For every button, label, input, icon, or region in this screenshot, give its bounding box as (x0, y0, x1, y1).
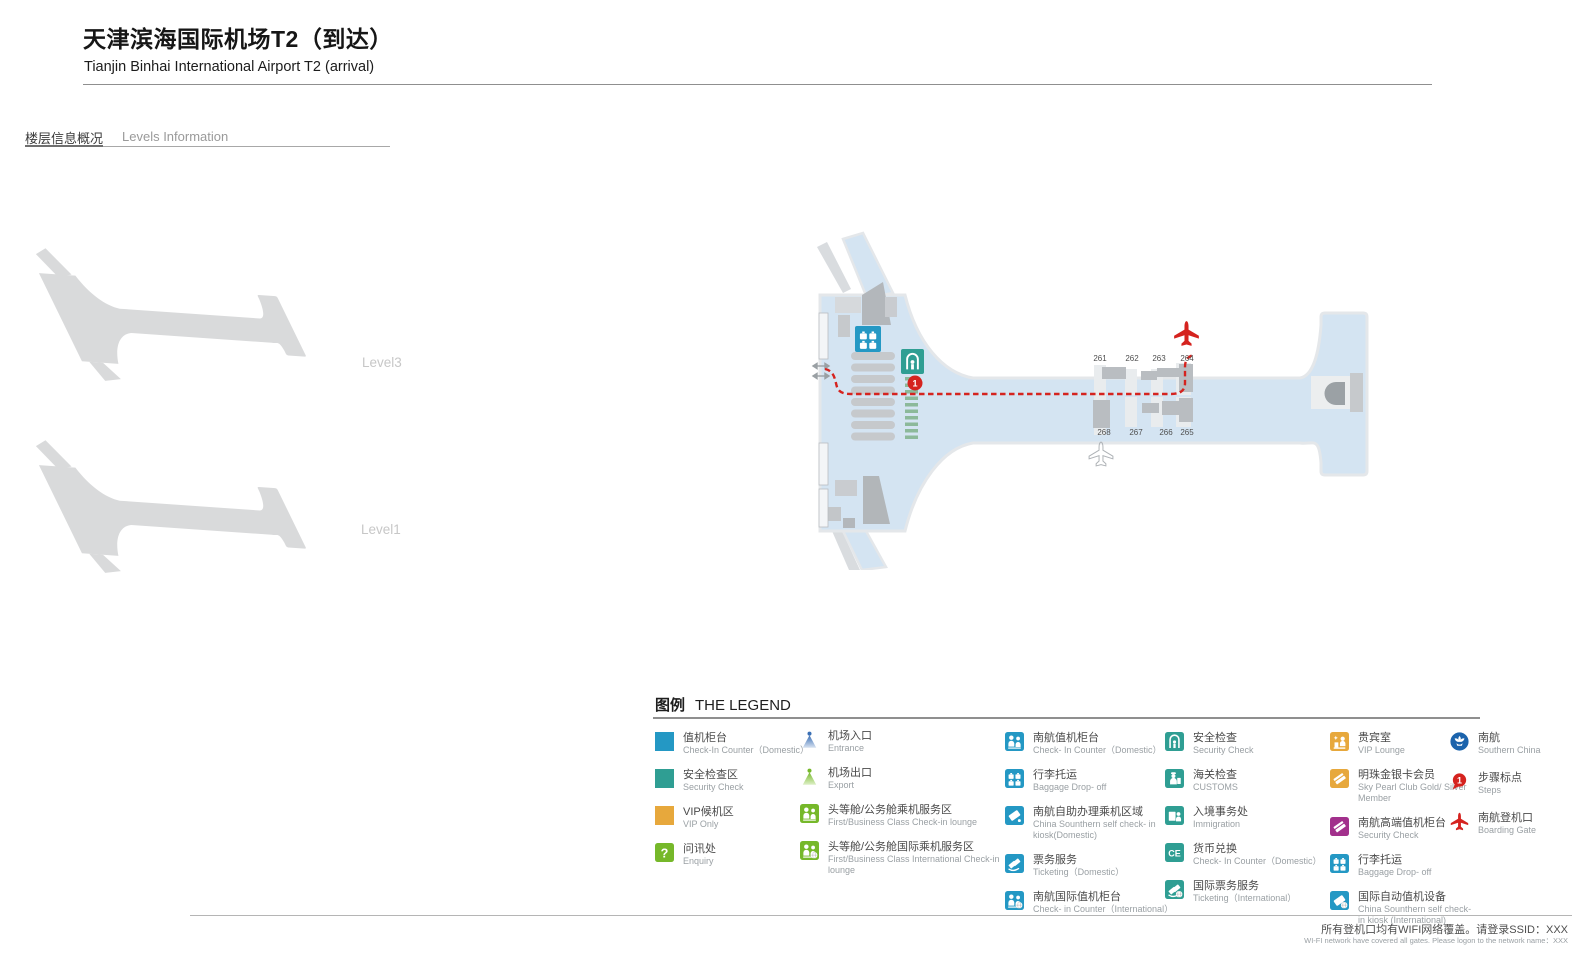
legend-item: 票务服务Ticketing（Domestic） (1005, 854, 1173, 878)
legend-item: 国际票务服务Ticketing（International） (1165, 880, 1341, 904)
terminal-map: 1 261 262 263 264 268 267 266 265 (805, 225, 1380, 570)
legend-item: 行李托运Baggage Drop- off (1005, 769, 1173, 793)
legend-title: 图例THE LEGEND (655, 694, 791, 715)
entrance-icon (800, 730, 819, 749)
self-checkin-kiosk-international-icon (1330, 891, 1349, 910)
levels-divider-accent (25, 145, 103, 147)
checkin-counter-swatch-icon (655, 732, 674, 751)
immigration-icon (1165, 806, 1184, 825)
legend-label-en: Check-In Counter（Domestic） (683, 745, 813, 756)
vip-area-swatch-icon (655, 806, 674, 825)
legend-title-zh: 图例 (655, 697, 685, 714)
level1-label: Level1 (361, 522, 401, 537)
currency-exchange-icon: CE (1165, 843, 1184, 862)
svg-text:CE: CE (1168, 848, 1180, 858)
checkin-counter-international-icon (1005, 891, 1024, 910)
security-area-swatch-icon (655, 769, 674, 788)
enquiry-icon: ? (655, 843, 674, 862)
gate-262: 262 (1125, 354, 1139, 363)
page-subtitle: Tianjin Binhai International Airport T2 … (84, 59, 374, 75)
level-silhouettes (18, 242, 338, 582)
legend-item: 南航Southern China (1450, 732, 1577, 756)
legend-item: 南航国际值机柜台Check- in Counter（International） (1005, 891, 1173, 915)
footer-divider (190, 915, 1572, 916)
legend-item: ? 问讯处Enquiry (655, 843, 813, 867)
security-check-icon (1165, 732, 1184, 751)
gate-267: 267 (1129, 428, 1143, 437)
gate-261: 261 (1093, 354, 1107, 363)
legend-item: 南航登机口Boarding Gate (1450, 812, 1577, 836)
level3-label: Level3 (362, 355, 402, 370)
customs-icon (1165, 769, 1184, 788)
baggage-dropoff-icon (1005, 769, 1024, 788)
step-marker-icon: 1 (1450, 772, 1469, 791)
first-class-lounge-icon (800, 804, 819, 823)
vip-lounge-icon (1330, 732, 1349, 751)
checkin-counter-domestic-icon (1005, 732, 1024, 751)
first-class-lounge-international-icon (800, 841, 819, 860)
exit-icon (800, 767, 819, 786)
legend-item: 入境事务处Immigration (1165, 806, 1341, 830)
legend-item: 行李托运Baggage Drop- off (1330, 854, 1476, 878)
legend-item: 值机柜台Check-In Counter（Domestic） (655, 732, 813, 756)
legend-item: 头等舱/公务舱国际乘机服务区First/Business Class Inter… (800, 841, 1003, 876)
legend-item: 南航自助办理乘机区域China Sounthern self check- in… (1005, 806, 1173, 841)
terminal-end-structure (1311, 373, 1363, 412)
legend-item: VIP候机区VIP Only (655, 806, 813, 830)
baggage-dropoff-icon (1330, 854, 1349, 873)
ticketing-international-icon (1165, 880, 1184, 899)
legend-item: 海关检查CUSTOMS (1165, 769, 1341, 793)
svg-text:?: ? (661, 846, 669, 860)
legend-item: 安全检查区Security Check (655, 769, 813, 793)
legend-column-1: 值机柜台Check-In Counter（Domestic） 安全检查区Secu… (655, 732, 813, 867)
aircraft-outline-icon (1089, 442, 1113, 466)
legend-column-3: 南航值机柜台Check- In Counter（Domestic） 行李托运Ba… (1005, 732, 1173, 915)
legend-item: CE 货币兑换Check- In Counter（Domestic） (1165, 843, 1341, 867)
legend-item: 南航值机柜台Check- In Counter（Domestic） (1005, 732, 1173, 756)
legend-item: 1 步骤标点Steps (1450, 772, 1577, 796)
title-divider (83, 84, 1432, 85)
legend-column-4: 安全检查Security Check 海关检查CUSTOMS 入境事务处Immi… (1165, 732, 1341, 904)
boarding-gate-icon (1450, 812, 1469, 831)
sky-pearl-member-icon (1330, 769, 1349, 788)
route-step-marker: 1 (908, 376, 923, 391)
premium-checkin-icon (1330, 817, 1349, 836)
gate-268: 268 (1097, 428, 1111, 437)
ticketing-domestic-icon (1005, 854, 1024, 873)
gate-263: 263 (1152, 354, 1166, 363)
legend-divider (653, 717, 1480, 719)
gate-265: 265 (1180, 428, 1194, 437)
footer-wifi-note-en: WI-FI network have covered all gates. Pl… (1304, 935, 1568, 946)
level1-silhouette (26, 439, 326, 582)
legend-item: 头等舱/公务舱乘机服务区First/Business Class Check-i… (800, 804, 1003, 828)
security-check-icon (901, 349, 924, 374)
levels-heading-en: Levels Information (122, 129, 228, 144)
svg-text:1: 1 (1457, 775, 1462, 785)
gate-264: 264 (1180, 354, 1194, 363)
svg-text:1: 1 (912, 378, 917, 388)
boarding-gate-plane-icon (1174, 321, 1199, 346)
baggage-dropoff-icon (855, 326, 881, 352)
legend-column-6: 南航Southern China 1 步骤标点Steps 南航登机口Boardi… (1450, 732, 1577, 836)
legend-item: 机场出口Export (800, 767, 1003, 791)
level3-silhouette (26, 247, 326, 396)
legend-column-2: 机场入口Entrance 机场出口Export 头等舱/公务舱乘机服务区Firs… (800, 730, 1003, 876)
map-pier-sliver-top (817, 242, 851, 293)
legend-item: 机场入口Entrance (800, 730, 1003, 754)
china-southern-logo-icon (1450, 732, 1469, 751)
page-title: 天津滨海国际机场T2（到达） (83, 20, 393, 54)
legend-title-en: THE LEGEND (695, 697, 791, 714)
legend-item: 安全检查Security Check (1165, 732, 1341, 756)
legend-label-zh: 值机柜台 (683, 732, 813, 745)
gate-266: 266 (1159, 428, 1173, 437)
self-checkin-kiosk-icon (1005, 806, 1024, 825)
